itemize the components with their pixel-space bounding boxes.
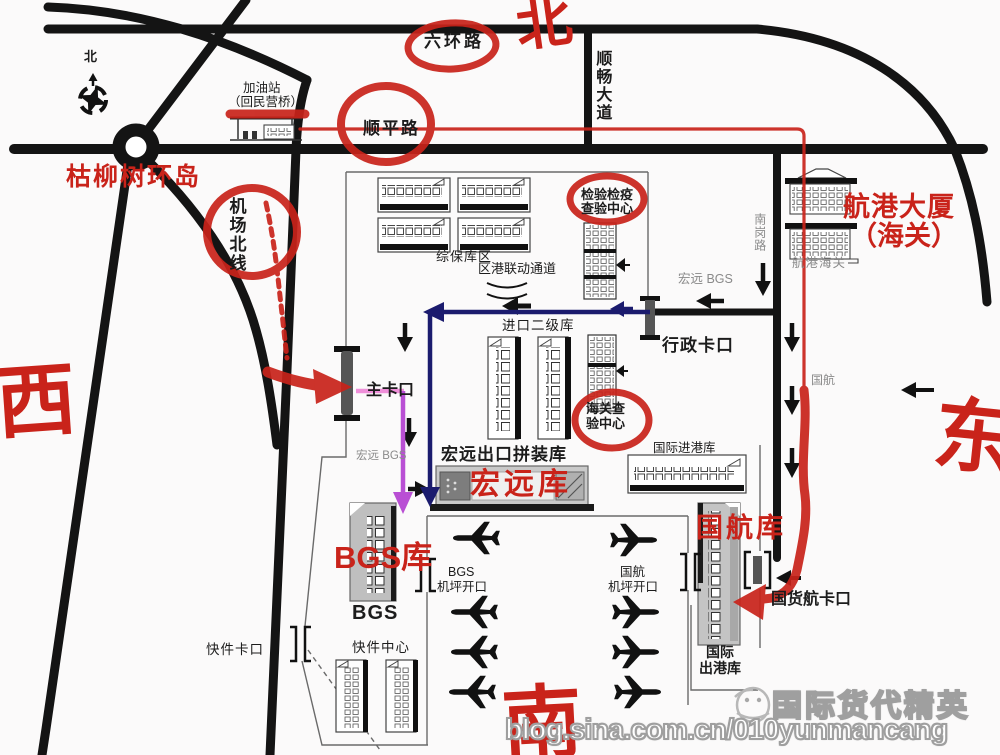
road-label-ring6: 六环路 xyxy=(424,32,484,52)
intl-departure-label-1: 国际 xyxy=(706,644,734,660)
road-label-nangang: 南岗路 xyxy=(752,213,766,252)
linkage-channel-label: 区港联动通道 xyxy=(478,262,556,277)
admin-gate-bar xyxy=(640,296,660,340)
express-warehouse-2 xyxy=(386,660,418,732)
roundabout xyxy=(119,130,153,164)
airport-cargo-map: 北 北 西 东 南 六环路 顺畅大道 顺平路 机场北线 南岗路 枯柳树环岛 加油… xyxy=(0,0,1000,755)
gas-station-label-2: （回民营桥） xyxy=(228,95,303,109)
airplane-icon xyxy=(610,524,657,557)
main-gate-label: 主卡口 xyxy=(366,382,414,400)
customs-check-building xyxy=(588,335,628,411)
intl-arrival-warehouse xyxy=(628,455,746,493)
intl-arrival-label: 国际进港库 xyxy=(653,441,716,455)
airplane-icon xyxy=(451,636,498,669)
bonded-warehouse-3 xyxy=(378,218,450,252)
left-arrow xyxy=(901,382,934,398)
road-roundabout-branch xyxy=(140,153,277,445)
cardinal-east: 东 xyxy=(929,388,1000,488)
down-arrow xyxy=(784,386,800,415)
compass-north-label: 北 xyxy=(84,50,97,65)
road-label-shunping: 顺平路 xyxy=(363,119,420,139)
admin-gate-label: 行政卡口 xyxy=(662,336,734,356)
airplane-icon xyxy=(449,676,496,709)
airplane-icon xyxy=(612,636,659,669)
road-label-airport-north: 机场北线 xyxy=(226,197,246,273)
watermark-url: blog.sina.com.cn/010yunmancang xyxy=(505,714,947,747)
down-arrow xyxy=(397,323,413,352)
airchina-warehouse-label: 国航库 xyxy=(696,513,786,544)
down-arrow xyxy=(755,263,771,296)
channel-chevron xyxy=(487,283,527,288)
express-center-label: 快件中心 xyxy=(352,640,410,656)
bonded-warehouse-4 xyxy=(458,218,530,252)
import-warehouse-1 xyxy=(488,337,521,439)
customs-check-label-1: 海关查 xyxy=(586,402,625,417)
red-squiggle-route xyxy=(266,203,287,358)
hongyuan-bgs-north-label: 宏远 BGS xyxy=(678,272,733,286)
intl-departure-label-2: 出港库 xyxy=(699,660,741,676)
import-warehouse-2 xyxy=(538,337,571,439)
left-arrow-on-route xyxy=(610,301,633,317)
import-l2-label: 进口二级库 xyxy=(502,318,575,334)
down-arrow xyxy=(784,323,800,352)
hongyuan-warehouse-label: 宏远库 xyxy=(470,468,572,503)
down-arrow xyxy=(784,448,800,478)
customs-check-label-2: 验中心 xyxy=(586,417,625,432)
express-gate-bar xyxy=(290,627,311,661)
channel-chevron xyxy=(487,294,527,299)
road-ramp-top-left xyxy=(48,7,307,80)
left-arrow xyxy=(696,293,724,309)
cargo-gate-label: 国货航卡口 xyxy=(771,591,851,609)
bonded-warehouse-2 xyxy=(458,178,530,212)
bgs-label: BGS xyxy=(352,602,398,625)
airplane-icon xyxy=(451,596,498,629)
bgs-apron-label-1: BGS xyxy=(448,565,474,579)
airplane-icon xyxy=(612,596,659,629)
hanggang-customs-label: 航港海关 xyxy=(792,256,846,270)
inspection-center-building xyxy=(584,223,630,299)
inspection-label-2: 查验中心 xyxy=(581,202,633,217)
road-southwest xyxy=(42,157,129,755)
circle-airport-north-line xyxy=(207,188,297,276)
airchina-apron-label-1: 国航 xyxy=(620,565,645,579)
airplane-icon xyxy=(614,676,661,709)
cardinal-north: 北 xyxy=(512,0,576,60)
hanggang-tower-label-1: 航港大厦 xyxy=(843,192,955,223)
roundabout-label: 枯柳树环岛 xyxy=(66,163,201,192)
cardinal-west: 西 xyxy=(0,353,79,450)
bgs-warehouse-label: BGS库 xyxy=(334,540,432,576)
gas-station-label-1: 加油站 xyxy=(243,81,281,95)
bgs-apron-label-2: 机坪开口 xyxy=(437,580,487,594)
hanggang-tower-label-2: （海关） xyxy=(850,221,958,252)
airplane-icon xyxy=(453,522,500,555)
airchina-apron-label-2: 机坪开口 xyxy=(608,580,658,594)
gas-station-building xyxy=(230,118,302,140)
cargo-gate-bar xyxy=(745,552,770,588)
compass-icon xyxy=(74,73,112,119)
express-gate-label: 快件卡口 xyxy=(206,642,264,658)
hongyuan-bgs-south-label: 宏远 BGS xyxy=(356,450,406,463)
airchina-road-label: 国航 xyxy=(811,374,835,388)
bonded-warehouse-1 xyxy=(378,178,450,212)
map-graphics xyxy=(0,0,1000,755)
hongyuan-export-label: 宏远出口拼装库 xyxy=(441,445,567,465)
road-label-shunchang: 顺畅大道 xyxy=(592,50,610,122)
express-warehouse-1 xyxy=(336,660,368,732)
